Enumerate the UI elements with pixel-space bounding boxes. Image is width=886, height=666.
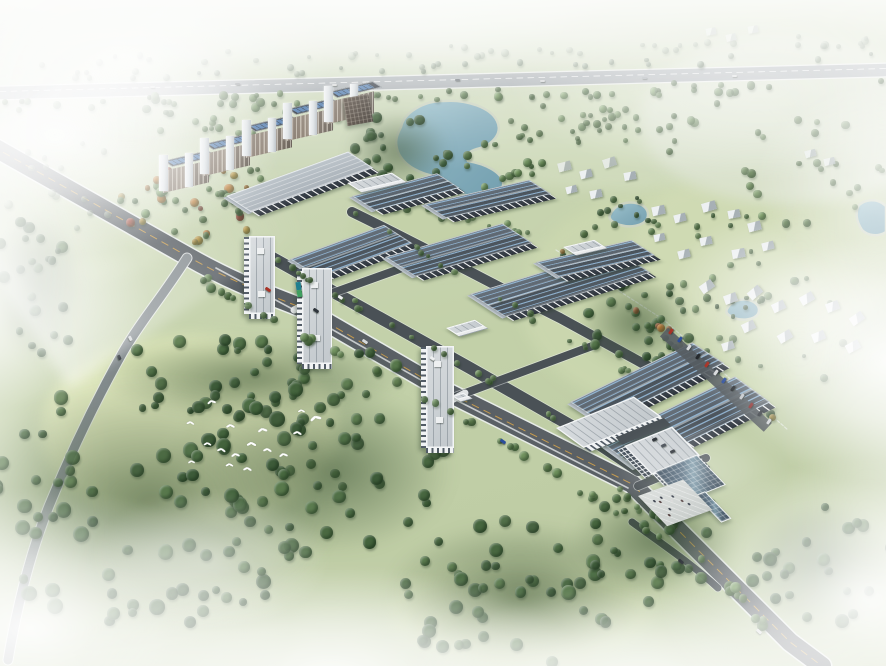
tree (733, 386, 740, 393)
tower-stair-core (200, 138, 209, 174)
tree (755, 129, 761, 135)
tree (691, 87, 697, 93)
village-house (557, 161, 572, 172)
tree (221, 200, 228, 207)
tree (33, 512, 43, 522)
tree (512, 302, 518, 308)
tree (481, 560, 491, 570)
tree (270, 316, 278, 324)
tree (38, 430, 47, 439)
tree (697, 61, 704, 68)
fog-patch (400, 588, 880, 666)
tree (372, 366, 381, 375)
warehouse-end-wall (533, 263, 560, 279)
forest-base (385, 520, 655, 664)
car (332, 84, 337, 86)
tree (386, 95, 392, 101)
tree (602, 276, 608, 282)
tree (624, 493, 630, 499)
office-facade (244, 237, 249, 314)
tree (294, 100, 301, 107)
tree (86, 486, 97, 497)
tree (747, 169, 756, 178)
tree (45, 583, 60, 598)
tree (161, 188, 169, 196)
bird-icon (293, 430, 302, 436)
tree (201, 59, 207, 65)
tree (436, 209, 441, 214)
tree (635, 127, 641, 133)
tree (378, 132, 384, 138)
tree (576, 139, 582, 145)
tree (607, 107, 613, 113)
warehouse-building (600, 376, 770, 468)
tree (588, 113, 593, 118)
tree (590, 518, 601, 529)
tree (307, 277, 313, 283)
tree (161, 198, 167, 204)
tree (560, 249, 565, 254)
tree (404, 590, 413, 599)
tree (652, 318, 661, 327)
tree (664, 524, 675, 535)
tree (640, 43, 644, 47)
warehouse-building (385, 223, 532, 276)
tree (702, 496, 711, 505)
water-bodies (396, 101, 886, 320)
tree (583, 308, 594, 319)
tree (438, 263, 443, 268)
tree (815, 56, 821, 62)
tree (521, 124, 528, 131)
hq-tower-facade (653, 456, 710, 486)
dark-building (343, 94, 373, 126)
tree (247, 167, 254, 174)
bird-icon (207, 398, 217, 404)
tree (163, 110, 168, 115)
person (667, 514, 671, 517)
tree (646, 62, 651, 67)
tree (177, 472, 187, 482)
tree (588, 567, 602, 581)
tree (333, 114, 341, 122)
tree (156, 448, 170, 462)
residential-tower (324, 84, 380, 138)
tree (481, 183, 488, 190)
tree (199, 216, 206, 223)
tree (525, 575, 534, 584)
car (661, 443, 667, 447)
car (670, 449, 676, 453)
tree (299, 364, 310, 375)
tree (860, 44, 866, 50)
tree (229, 377, 240, 388)
tree (580, 272, 588, 280)
tree (266, 458, 279, 471)
tree (519, 133, 525, 139)
tree (256, 574, 272, 590)
tree (390, 359, 403, 372)
tree (320, 526, 333, 539)
tree (449, 600, 463, 614)
tree (45, 256, 52, 263)
tree (235, 130, 242, 137)
tower-stair-core (350, 84, 358, 118)
tree (287, 378, 297, 388)
village-house (699, 236, 712, 246)
tree (454, 640, 464, 650)
tree (422, 624, 436, 638)
tree (176, 583, 189, 596)
tree (590, 560, 600, 570)
tree (514, 229, 522, 237)
tree (214, 70, 220, 76)
hq-tower-roof (624, 427, 700, 475)
tree (608, 113, 616, 121)
roof-ridge (487, 261, 634, 306)
tower-stair-core (324, 86, 333, 122)
car (235, 83, 240, 85)
hq-glass-slot (695, 491, 732, 522)
tree (600, 278, 605, 283)
tree (294, 424, 306, 436)
tree (529, 317, 536, 324)
tree (201, 433, 216, 448)
tree (818, 166, 824, 172)
tree (593, 120, 601, 128)
tree (687, 349, 693, 355)
tree (436, 640, 449, 653)
tree (657, 315, 665, 323)
tree (577, 51, 582, 56)
village-house (579, 169, 593, 180)
village-house (727, 209, 740, 219)
tree (833, 161, 839, 167)
tree (766, 411, 773, 418)
tree (58, 302, 68, 312)
tree (580, 112, 585, 117)
tree (766, 84, 771, 89)
tree (714, 370, 720, 376)
tree (767, 412, 773, 418)
tree (794, 116, 802, 124)
person (676, 509, 680, 512)
tree (425, 206, 432, 213)
tree (218, 190, 225, 197)
village-house (731, 248, 745, 259)
car (642, 77, 647, 79)
tree (514, 169, 522, 177)
tree (233, 337, 245, 349)
tree (650, 87, 659, 96)
tree (157, 194, 166, 203)
tree (201, 487, 210, 496)
tree (795, 42, 801, 48)
tree (362, 390, 370, 398)
tree (163, 74, 170, 81)
internal-road-casing (262, 252, 638, 470)
tree (609, 59, 614, 64)
tree (678, 43, 683, 48)
tree (194, 236, 203, 245)
tree (478, 631, 489, 642)
hq-plaza (638, 480, 712, 527)
tree (519, 451, 529, 461)
fog-patch (0, 190, 150, 410)
tree (235, 208, 240, 213)
tree (247, 392, 255, 400)
tree (37, 348, 46, 357)
tree (249, 401, 263, 415)
tree (153, 392, 164, 403)
tree (666, 290, 673, 297)
tree (698, 555, 706, 563)
tree (529, 94, 534, 99)
tree (236, 501, 249, 514)
tree (0, 479, 3, 493)
tree (864, 586, 874, 596)
tree (752, 552, 762, 562)
tree (84, 70, 89, 75)
tree (403, 517, 413, 527)
tree (406, 52, 412, 58)
tree (206, 186, 212, 192)
tree (633, 307, 640, 314)
tree (0, 456, 9, 470)
forest-base (346, 110, 450, 190)
tree (56, 502, 72, 518)
bird-icon (279, 452, 288, 458)
bird-icon (217, 446, 227, 452)
auxiliary-building (452, 393, 469, 400)
tree (145, 185, 151, 191)
tree (236, 210, 242, 216)
tree (546, 587, 556, 597)
tree (107, 588, 118, 599)
tree (217, 100, 224, 107)
tree (728, 297, 734, 303)
tree (515, 586, 526, 597)
tree (366, 129, 373, 136)
tree (591, 272, 595, 276)
tower-facade (204, 143, 250, 176)
tree (104, 211, 111, 218)
tree (690, 118, 699, 127)
tower-roof (163, 150, 217, 166)
tree (198, 206, 203, 211)
tree (432, 168, 440, 176)
tree (372, 92, 378, 98)
tree (582, 63, 588, 69)
tree (231, 93, 239, 101)
tree (771, 548, 779, 556)
tree (209, 120, 216, 127)
fog-patch (90, 490, 330, 630)
tree (575, 268, 583, 276)
person (671, 495, 675, 498)
warehouse-roof (600, 376, 770, 468)
tree (655, 565, 667, 577)
tree (462, 61, 468, 67)
fog-patch (658, 458, 886, 666)
village-house (589, 189, 602, 199)
tree (595, 613, 608, 626)
tree (28, 258, 35, 265)
person (659, 496, 663, 499)
tree (234, 347, 241, 354)
tree (249, 94, 257, 102)
tree (527, 310, 533, 316)
village-house (849, 311, 866, 327)
tree (758, 364, 762, 368)
tree (52, 192, 60, 200)
tree (758, 212, 766, 220)
tree (704, 498, 717, 511)
tree (215, 124, 224, 133)
auxiliary-building (563, 240, 604, 254)
white-vignette (0, 0, 886, 666)
tree (680, 280, 687, 287)
warehouse-building (470, 250, 651, 317)
fog-patch (754, 83, 886, 273)
tree (141, 209, 150, 218)
tree (337, 351, 344, 358)
tree (173, 335, 186, 348)
tree (606, 297, 616, 307)
tree (126, 218, 134, 226)
tree (516, 134, 522, 140)
tree (578, 123, 586, 131)
tree (209, 126, 214, 131)
tree (538, 159, 546, 167)
forest-base (95, 336, 405, 420)
solar-panel (312, 101, 333, 108)
tree (481, 140, 488, 147)
fog-patch (0, 488, 290, 666)
tree (139, 404, 147, 412)
tree (393, 183, 401, 191)
tree (192, 401, 205, 414)
tree (19, 574, 28, 583)
tree (406, 118, 414, 126)
tree (652, 43, 657, 48)
aux-roof (563, 240, 604, 254)
parked-car (686, 345, 692, 352)
solar-panel (209, 141, 230, 148)
tree (543, 91, 551, 99)
parked-car (757, 410, 763, 417)
tree (132, 68, 139, 75)
tree (142, 105, 151, 114)
rooftop-unit (436, 417, 443, 423)
tree (725, 384, 731, 390)
tree (757, 620, 768, 631)
gate-sign (297, 290, 303, 298)
tree (80, 141, 85, 146)
tree (644, 557, 655, 568)
tree (351, 433, 361, 443)
tower-facade (246, 125, 292, 158)
tree (351, 437, 364, 450)
tree (443, 150, 453, 160)
fog-patch (0, 15, 285, 255)
tree (426, 254, 430, 258)
hq-wing (556, 397, 661, 448)
tree (821, 41, 828, 48)
person (680, 500, 684, 503)
grass-patch (40, 335, 340, 525)
tree (75, 70, 80, 75)
tree (763, 552, 777, 566)
tree (339, 66, 343, 70)
tree (489, 543, 503, 557)
tree (277, 90, 284, 97)
fog-patch (610, 420, 790, 520)
tree (657, 324, 665, 332)
tree (439, 159, 447, 167)
grass-patch (0, 160, 180, 280)
tree (684, 564, 693, 573)
tree (680, 348, 685, 353)
tree (191, 450, 203, 462)
village-house (701, 200, 717, 213)
tree (233, 412, 243, 422)
tree (600, 616, 611, 627)
tree (200, 169, 210, 179)
car (313, 308, 320, 314)
car (678, 558, 685, 564)
tree (203, 230, 209, 236)
tree (523, 158, 532, 167)
tree (725, 586, 736, 597)
tree (473, 519, 487, 533)
tree (260, 405, 272, 417)
car (150, 86, 155, 88)
tree (149, 599, 165, 615)
tree (623, 494, 631, 502)
parked-car (695, 353, 701, 360)
tree (745, 394, 750, 399)
tree (192, 239, 197, 244)
roadside-wall (216, 268, 298, 312)
tree (19, 99, 24, 104)
tree (300, 333, 309, 342)
tree (869, 52, 873, 56)
village-house (777, 329, 794, 344)
tree (623, 248, 630, 255)
village-house (653, 233, 665, 242)
tree (418, 94, 423, 99)
office-facade (297, 269, 302, 364)
tree (846, 190, 853, 197)
tree (698, 61, 704, 67)
grass-patch (390, 557, 650, 666)
tree (621, 508, 628, 515)
tree (392, 377, 402, 387)
tree (454, 570, 463, 579)
tree (369, 132, 378, 141)
tree (592, 224, 598, 230)
tree (582, 342, 587, 347)
village-house (845, 339, 862, 354)
office-building (426, 346, 454, 448)
tree (487, 224, 491, 228)
tree (297, 413, 310, 426)
road-and-water-svg (0, 0, 886, 666)
tree (733, 380, 739, 386)
tree (460, 91, 468, 99)
residential-tower (283, 101, 339, 155)
